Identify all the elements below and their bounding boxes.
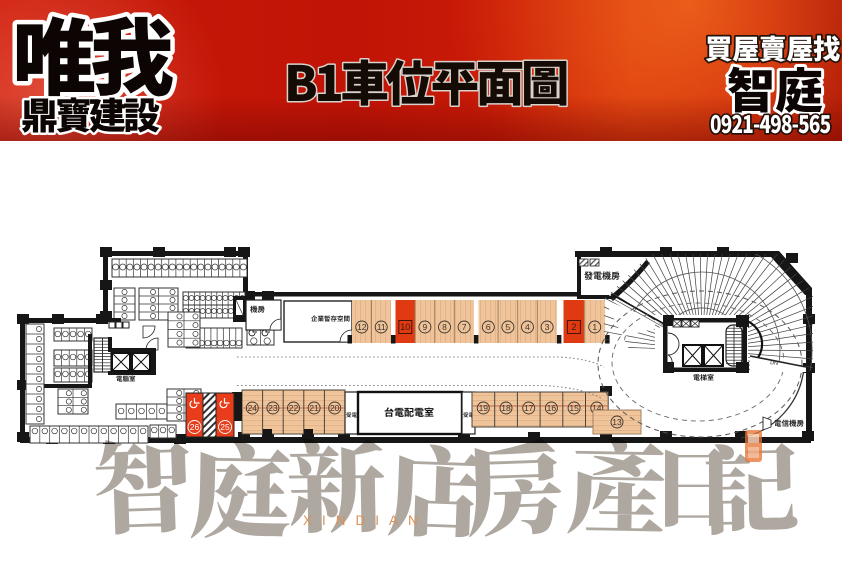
svg-text:5: 5 bbox=[506, 322, 511, 332]
svg-text:15: 15 bbox=[569, 403, 579, 413]
svg-text:22: 22 bbox=[289, 403, 299, 413]
svg-text:3: 3 bbox=[545, 322, 550, 332]
svg-text:20: 20 bbox=[330, 403, 340, 413]
svg-text:13: 13 bbox=[612, 417, 622, 427]
svg-text:10: 10 bbox=[400, 322, 410, 332]
svg-text:23: 23 bbox=[268, 403, 278, 413]
svg-text:9: 9 bbox=[423, 322, 428, 332]
svg-text:25: 25 bbox=[220, 422, 230, 432]
svg-text:21: 21 bbox=[309, 403, 319, 413]
svg-text:17: 17 bbox=[524, 403, 534, 413]
svg-text:7: 7 bbox=[462, 322, 467, 332]
svg-text:6: 6 bbox=[486, 322, 491, 332]
svg-text:2: 2 bbox=[571, 322, 576, 332]
svg-text:18: 18 bbox=[501, 403, 511, 413]
svg-text:12: 12 bbox=[357, 322, 367, 332]
svg-text:24: 24 bbox=[248, 403, 258, 413]
svg-text:11: 11 bbox=[377, 322, 386, 332]
svg-text:19: 19 bbox=[479, 403, 489, 413]
svg-text:DN: DN bbox=[770, 360, 779, 367]
svg-text:16: 16 bbox=[547, 403, 557, 413]
svg-text:8: 8 bbox=[442, 322, 447, 332]
svg-text:XINDIAN: XINDIAN bbox=[303, 513, 428, 528]
svg-text:1: 1 bbox=[592, 322, 597, 332]
svg-text:26: 26 bbox=[190, 422, 200, 432]
svg-text:4: 4 bbox=[525, 322, 530, 332]
